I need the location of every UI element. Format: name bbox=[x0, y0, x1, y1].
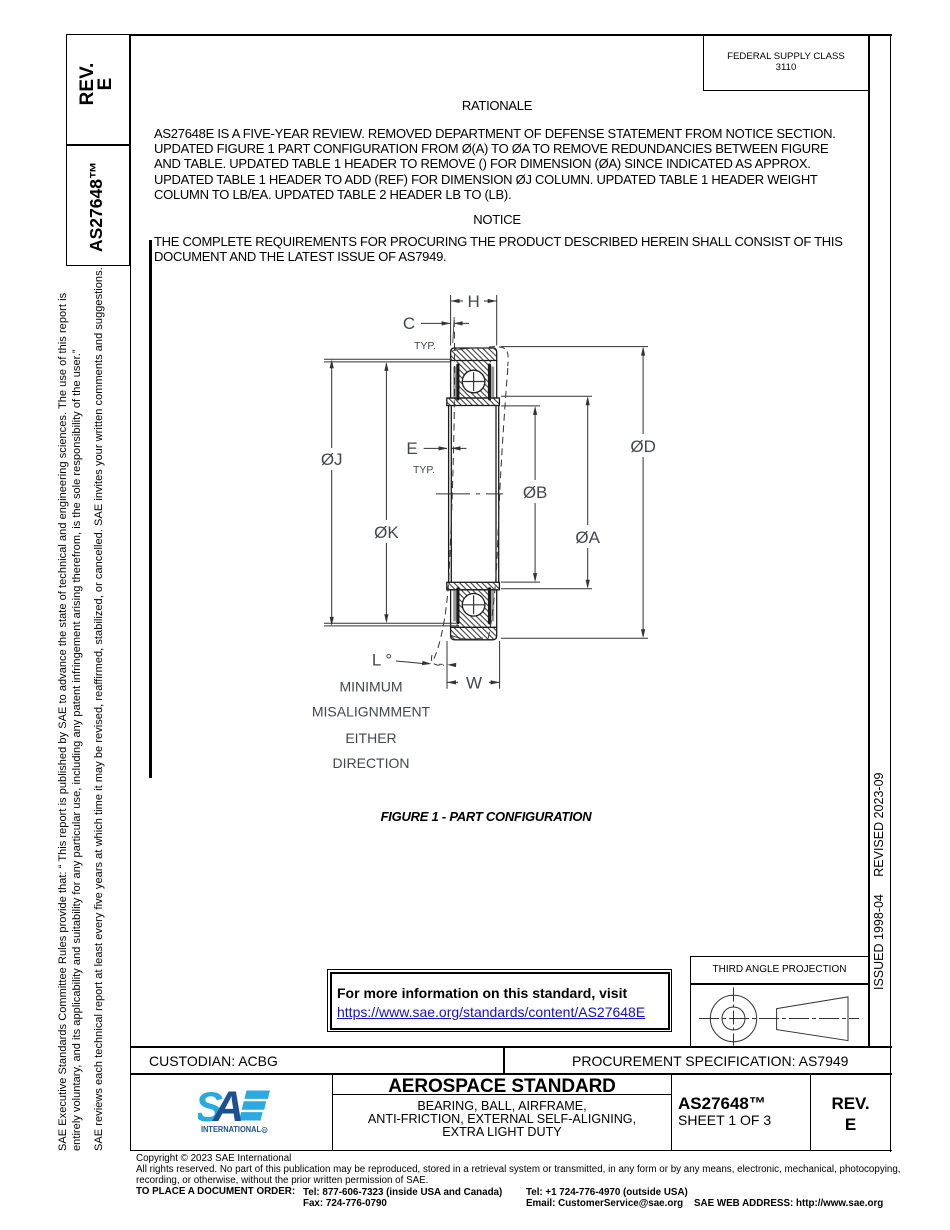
svg-text:MINIMUM: MINIMUM bbox=[340, 679, 403, 695]
svg-text:E: E bbox=[406, 439, 417, 458]
svg-text:ØK: ØK bbox=[374, 523, 399, 542]
svg-text:TYP.: TYP. bbox=[414, 340, 436, 352]
svg-text:H: H bbox=[467, 292, 479, 311]
svg-text:MISALIGNMMENT: MISALIGNMMENT bbox=[312, 704, 431, 720]
svg-text:EITHER: EITHER bbox=[345, 730, 396, 746]
svg-text:ØA: ØA bbox=[575, 528, 600, 547]
svg-text:ØB: ØB bbox=[523, 483, 548, 502]
svg-text:L °: L ° bbox=[372, 651, 392, 670]
svg-text:ØD: ØD bbox=[630, 437, 656, 456]
svg-text:DIRECTION: DIRECTION bbox=[333, 755, 410, 771]
svg-text:TYP.: TYP. bbox=[413, 464, 435, 476]
svg-text:W: W bbox=[466, 674, 482, 693]
svg-text:ØJ: ØJ bbox=[321, 450, 343, 469]
svg-text:C: C bbox=[403, 314, 415, 333]
